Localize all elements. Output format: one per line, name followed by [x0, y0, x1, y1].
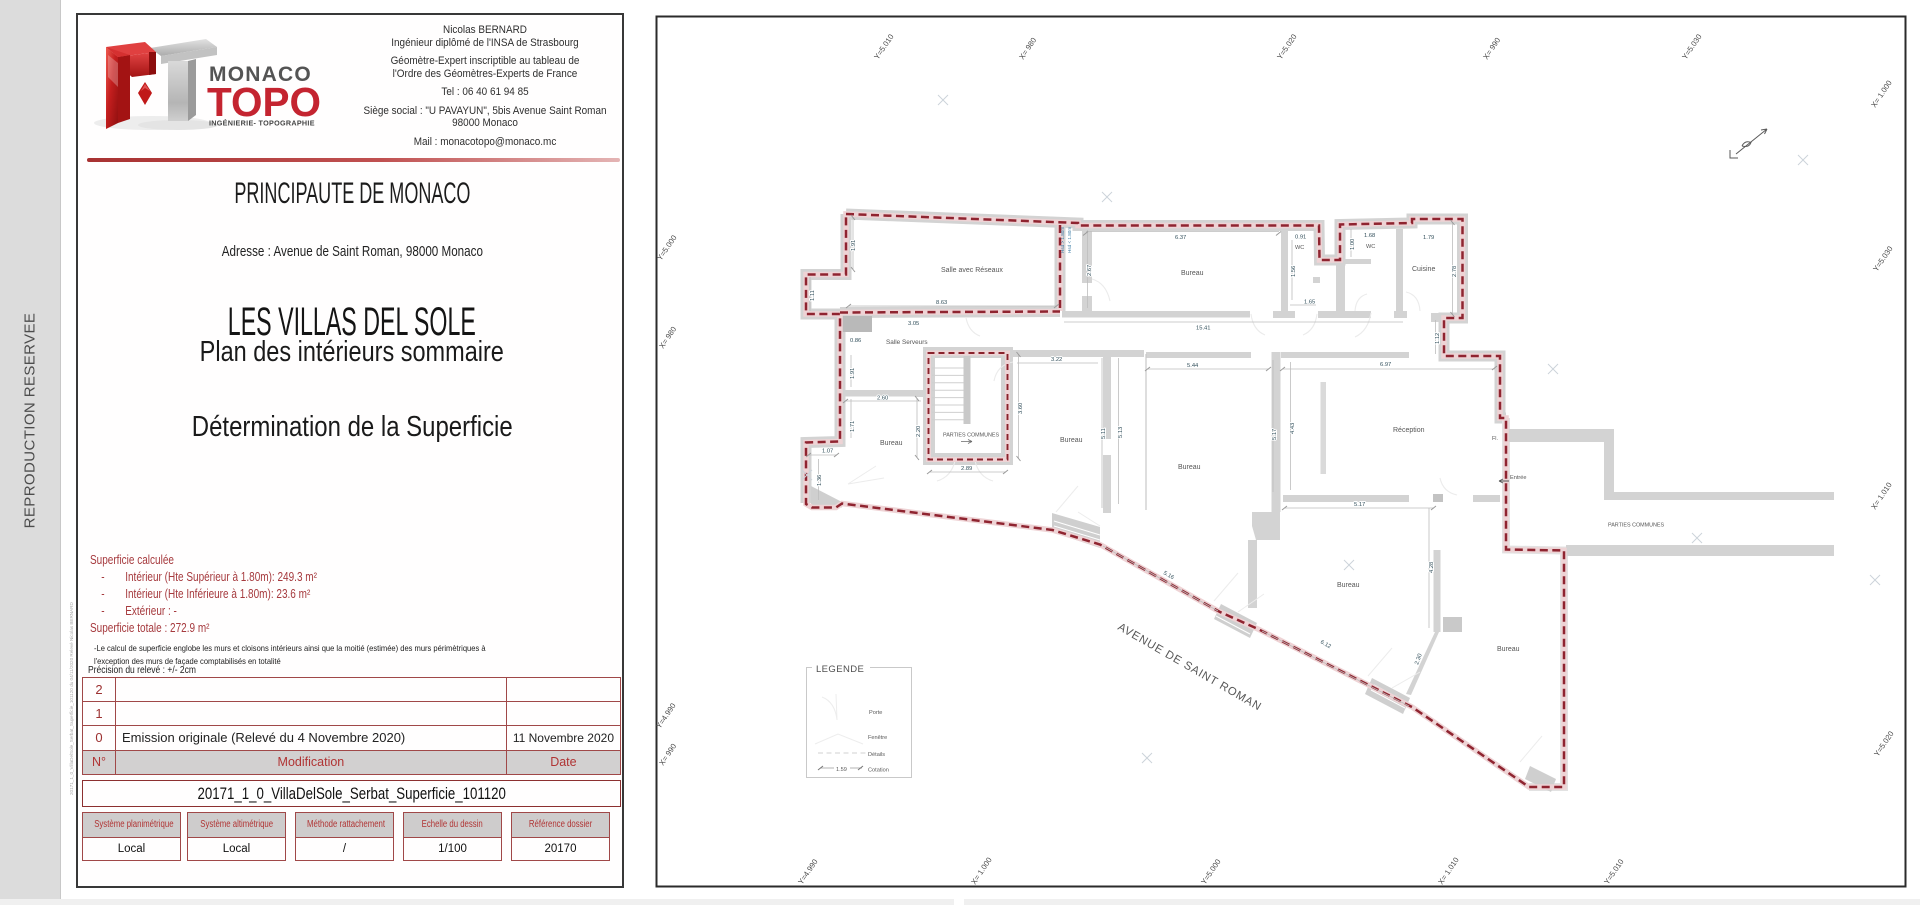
svg-text:0.91: 0.91	[1295, 235, 1306, 241]
svg-text:2.78: 2.78	[1452, 266, 1458, 277]
svg-text:1.71: 1.71	[850, 421, 856, 432]
svg-text:4.28: 4.28	[1429, 562, 1435, 573]
svg-text:Fenêtre: Fenêtre	[868, 735, 887, 741]
svg-text:PARTIES COMMUNES: PARTIES COMMUNES	[1608, 523, 1665, 529]
svg-text:Fl.: Fl.	[1492, 436, 1498, 442]
svg-text:6.37: 6.37	[1175, 235, 1186, 241]
svg-text:Réception: Réception	[1393, 427, 1425, 434]
svg-text:2.60: 2.60	[877, 396, 888, 402]
svg-text:Bureau: Bureau	[1497, 646, 1520, 653]
svg-text:Bureau: Bureau	[1178, 464, 1201, 471]
svg-text:1.07: 1.07	[822, 449, 833, 455]
svg-text:1.36: 1.36	[817, 475, 823, 486]
svg-text:15.41: 15.41	[1196, 326, 1211, 332]
svg-text:5.11: 5.11	[1101, 428, 1107, 439]
svg-text:5.17: 5.17	[1272, 429, 1278, 440]
svg-text:Bureau: Bureau	[1181, 270, 1204, 277]
svg-text:4.43: 4.43	[1290, 423, 1296, 434]
svg-text:1.91: 1.91	[851, 240, 857, 251]
svg-text:2.89: 2.89	[961, 466, 972, 472]
svg-text:Bureau: Bureau	[1060, 437, 1083, 444]
svg-text:3.60: 3.60	[1018, 403, 1024, 414]
svg-text:Porte: Porte	[869, 710, 882, 716]
svg-text:Cotation: Cotation	[868, 768, 889, 774]
svg-text:8.63: 8.63	[936, 300, 947, 306]
svg-text:1.56: 1.56	[1291, 266, 1297, 277]
svg-text:Cuisine: Cuisine	[1412, 266, 1435, 273]
svg-text:Salle avec Réseaux: Salle avec Réseaux	[941, 267, 1003, 274]
svg-text:WC: WC	[1295, 245, 1304, 251]
svg-text:1.65: 1.65	[1304, 300, 1315, 306]
svg-text:INGÉNIERIE- TOPOGRAPHIE: INGÉNIERIE- TOPOGRAPHIE	[209, 119, 315, 128]
svg-text:1.68: 1.68	[1364, 233, 1375, 239]
svg-text:1.79: 1.79	[1423, 235, 1434, 241]
svg-text:Salle Serveurs: Salle Serveurs	[886, 339, 928, 346]
svg-text:Détails: Détails	[868, 752, 885, 758]
svg-text:2.67: 2.67	[1087, 265, 1093, 276]
svg-text:PARTIES COMMUNES: PARTIES COMMUNES	[943, 433, 1000, 439]
svg-text:LEGENDE: LEGENDE	[816, 664, 864, 675]
svg-text:5.44: 5.44	[1187, 363, 1199, 369]
svg-text:Bureau: Bureau	[1337, 582, 1360, 589]
svg-text:1.59: 1.59	[836, 767, 847, 773]
svg-text:1.11: 1.11	[810, 290, 816, 301]
svg-text:0.86: 0.86	[850, 338, 861, 344]
svg-text:3.22: 3.22	[1051, 357, 1062, 363]
svg-text:1.91: 1.91	[850, 368, 856, 379]
svg-text:Hsd < 1.80m: Hsd < 1.80m	[1067, 227, 1072, 253]
svg-text:1.12: 1.12	[1435, 333, 1441, 344]
svg-text:6.97: 6.97	[1380, 362, 1391, 368]
svg-text:5.17: 5.17	[1354, 502, 1365, 508]
svg-text:WC: WC	[1366, 244, 1375, 250]
svg-text:Hsd > 1.80m: Hsd > 1.80m	[1060, 227, 1065, 253]
svg-text:3.05: 3.05	[908, 321, 919, 327]
svg-text:2.20: 2.20	[916, 426, 922, 437]
svg-text:Bureau: Bureau	[880, 440, 903, 447]
svg-text:Entrée: Entrée	[1510, 475, 1526, 481]
svg-text:1.00: 1.00	[1350, 239, 1356, 250]
svg-text:5.13: 5.13	[1118, 427, 1124, 438]
